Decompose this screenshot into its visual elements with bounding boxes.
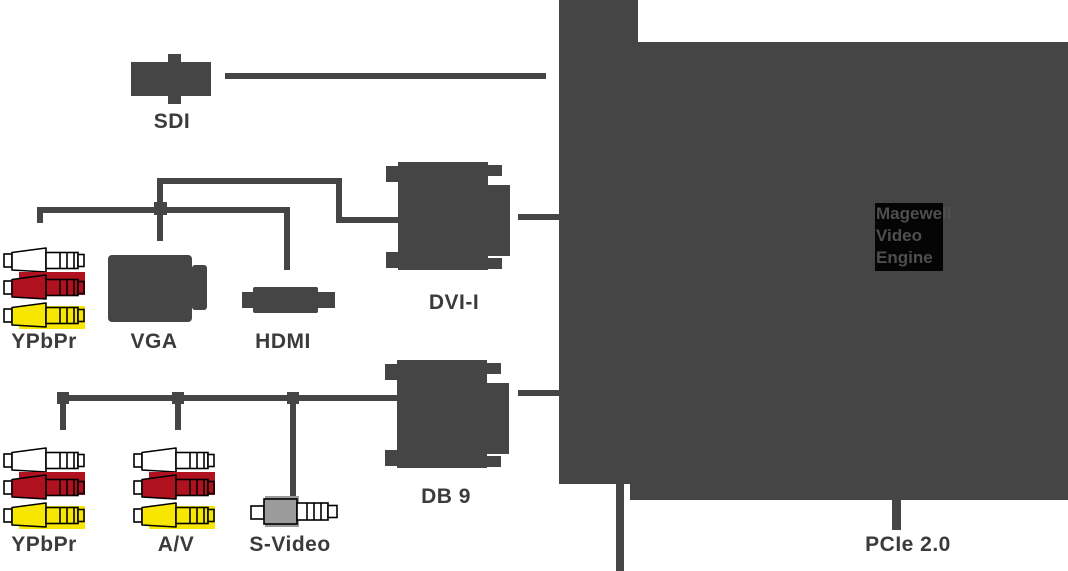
dvi-label: DVI-I — [429, 291, 479, 315]
svideo-label: S-Video — [249, 533, 330, 557]
card-bracket-column — [559, 0, 638, 484]
av-stub — [175, 401, 181, 430]
ypbpr-bottom-stub — [60, 401, 66, 430]
av-label: A/V — [158, 533, 195, 557]
av-connectors-icon — [132, 445, 222, 531]
chip-text-line3: Engine — [875, 247, 943, 269]
sdi-connector-icon — [130, 53, 214, 105]
pcie-label: PCIe 2.0 — [865, 533, 951, 557]
vga-connector-icon — [106, 252, 210, 324]
video-engine-chip: Magewell Video Engine — [875, 203, 943, 271]
db9-connector-icon — [385, 356, 511, 474]
hdmi-stub — [284, 213, 290, 270]
vga-label: VGA — [130, 330, 177, 354]
ypbpr-top-label: YPbPr — [11, 330, 77, 354]
svideo-connector-icon — [250, 495, 340, 529]
hdmi-connector-icon — [241, 286, 337, 314]
ypbpr-top-connectors-icon — [2, 245, 92, 331]
dvi-to-card-line — [518, 214, 559, 220]
sdi-label: SDI — [154, 110, 191, 134]
db9-bus-line — [59, 395, 398, 401]
dvi-bus-top-line — [157, 178, 342, 184]
chip-text-line2: Video — [875, 225, 943, 247]
db9-to-card-line — [518, 390, 559, 396]
db9-label: DB 9 — [421, 485, 471, 509]
hdmi-label: HDMI — [255, 330, 311, 354]
sdi-to-card-line — [225, 73, 546, 79]
svideo-drop-line — [290, 401, 296, 500]
dvi-connector-icon — [386, 158, 512, 276]
card-bracket-line — [616, 483, 624, 571]
capture-card-diagram: Magewell Video Engine SDI YPbPr VGA — [0, 0, 1068, 571]
pcie-connector-stub — [892, 499, 901, 530]
card-body — [630, 42, 1068, 500]
ypbpr-bottom-label: YPbPr — [11, 533, 77, 557]
chip-text-line1: Magewell — [875, 203, 943, 225]
ypbpr-top-stub — [37, 207, 43, 223]
ypbpr-bottom-connectors-icon — [2, 445, 92, 531]
vga-stub — [157, 213, 163, 241]
